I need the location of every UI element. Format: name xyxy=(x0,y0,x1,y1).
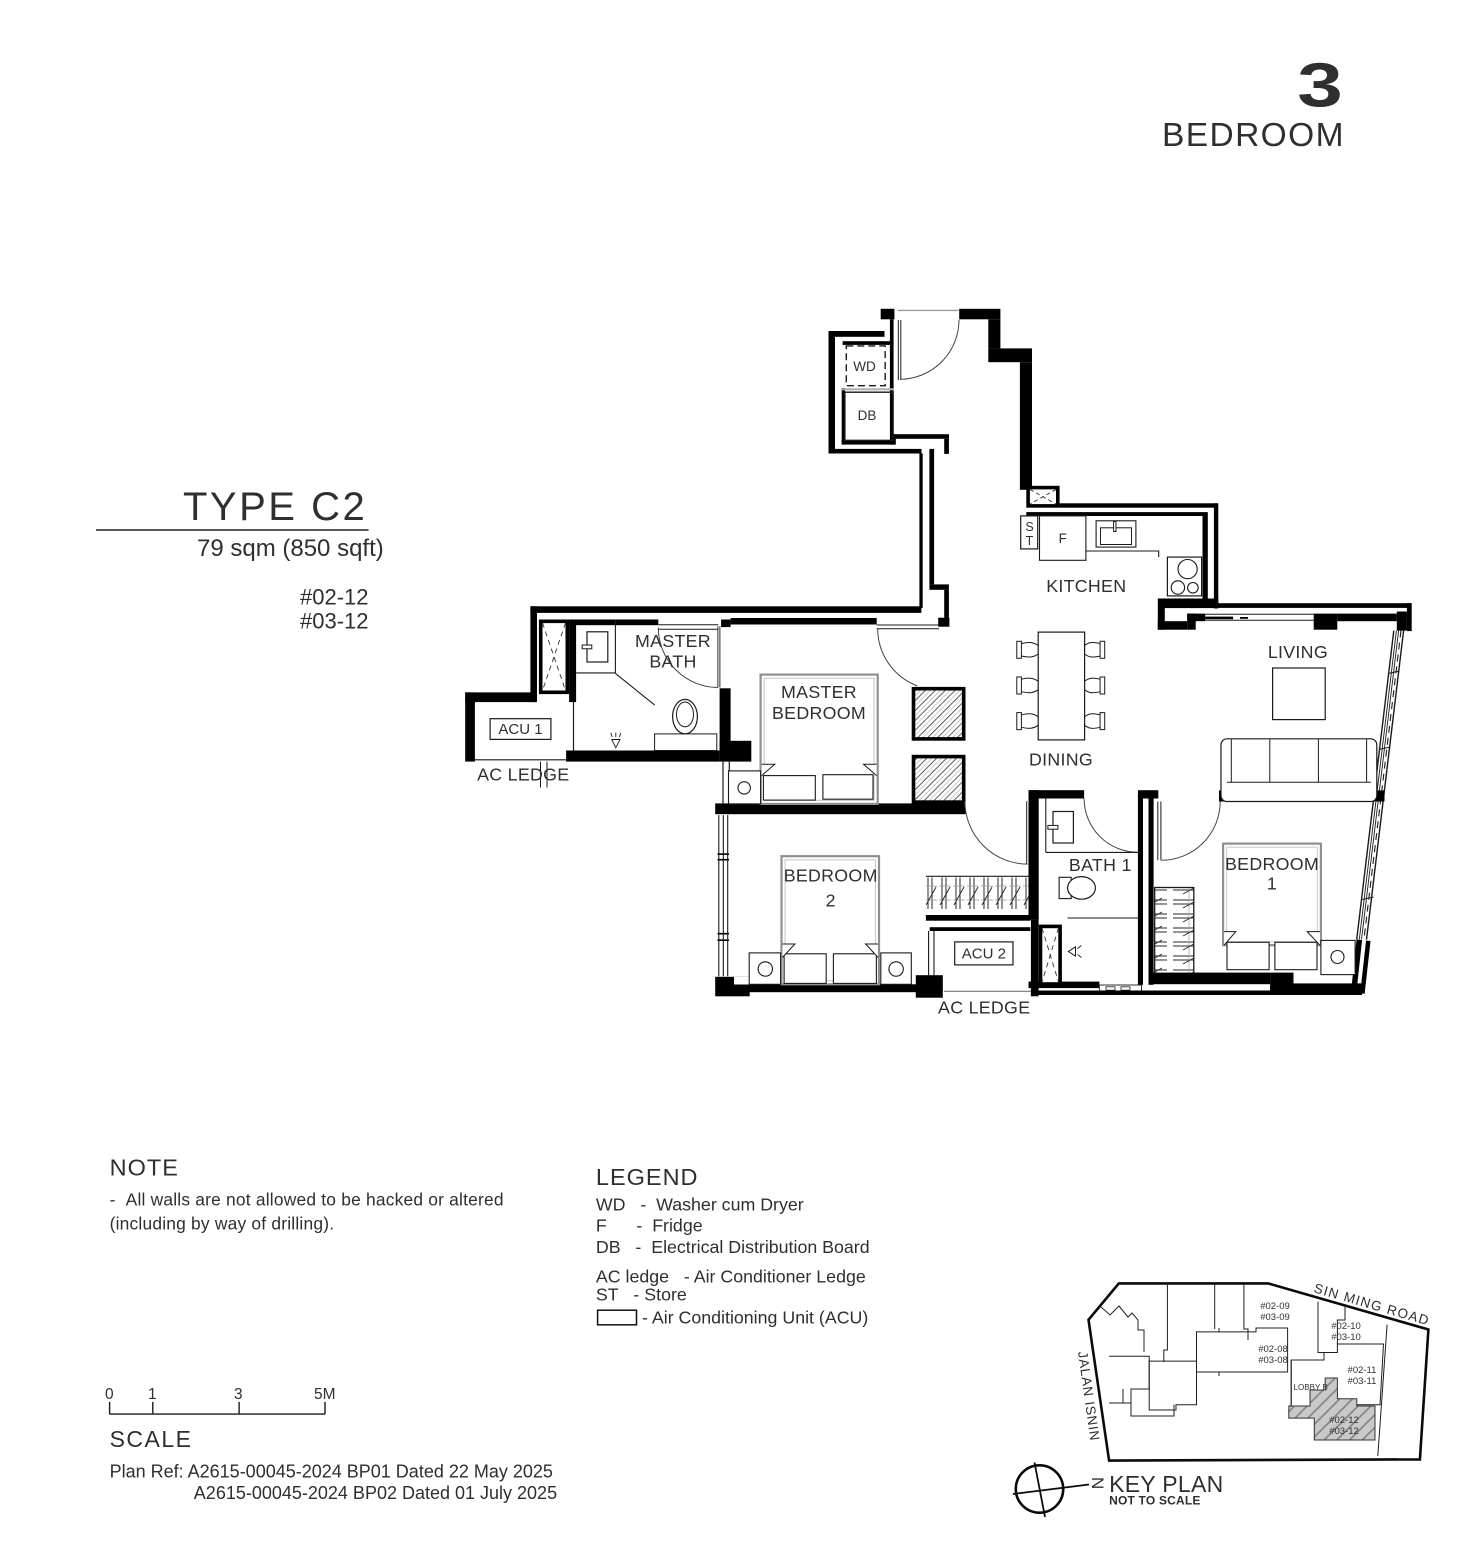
svg-text:DINING: DINING xyxy=(1029,749,1093,769)
svg-text:A2615-00045-2024 BP02 Dated 01: A2615-00045-2024 BP02 Dated 01 July 2025 xyxy=(194,1483,557,1503)
svg-text:79 sqm (850 sqft): 79 sqm (850 sqft) xyxy=(197,535,384,562)
svg-text:- Air Conditioning Unit (ACU): - Air Conditioning Unit (ACU) xyxy=(642,1308,868,1328)
svg-text:S: S xyxy=(1025,520,1033,534)
svg-text:WD: WD xyxy=(853,359,876,374)
svg-text:AC LEDGE: AC LEDGE xyxy=(938,998,1030,1018)
svg-text:KITCHEN: KITCHEN xyxy=(1046,576,1126,596)
svg-text:WD - Washer cum Dryer: WD - Washer cum Dryer xyxy=(596,1195,804,1215)
svg-text:1: 1 xyxy=(148,1386,157,1403)
svg-text:#03-12: #03-12 xyxy=(1329,1426,1359,1437)
svg-text:#02-08: #02-08 xyxy=(1258,1344,1288,1355)
svg-text:1: 1 xyxy=(1267,874,1277,894)
svg-text:#02-12: #02-12 xyxy=(300,585,369,610)
svg-text:#03-09: #03-09 xyxy=(1260,1312,1290,1323)
svg-text:AC LEDGE: AC LEDGE xyxy=(477,764,569,784)
svg-text:ST - Store: ST - Store xyxy=(596,1285,687,1305)
svg-text:AC ledge - Air Conditioner L: AC ledge - Air Conditioner Ledge xyxy=(596,1266,866,1286)
svg-text:(including by way of drilling): (including by way of drilling). xyxy=(110,1213,335,1233)
svg-text:BATH: BATH xyxy=(649,652,696,672)
svg-text:5M: 5M xyxy=(314,1386,336,1403)
svg-text:F: F xyxy=(1059,531,1067,546)
svg-text:3: 3 xyxy=(1297,51,1343,120)
svg-text:#03-08: #03-08 xyxy=(1258,1355,1288,1366)
svg-text:#02-09: #02-09 xyxy=(1260,1301,1290,1312)
svg-text:BEDROOM: BEDROOM xyxy=(1162,117,1345,154)
svg-text:N: N xyxy=(1088,1477,1107,1489)
svg-text:BATH 1: BATH 1 xyxy=(1069,855,1132,875)
svg-text:- All walls are not allowed t: - All walls are not allowed to be hacked… xyxy=(110,1190,504,1210)
svg-text:#03-11: #03-11 xyxy=(1348,1376,1377,1387)
svg-text:ACU 2: ACU 2 xyxy=(962,946,1006,963)
svg-text:BEDROOM: BEDROOM xyxy=(772,703,866,723)
svg-text:MASTER: MASTER xyxy=(635,631,711,651)
svg-text:#03-12: #03-12 xyxy=(300,609,369,634)
svg-text:SCALE: SCALE xyxy=(110,1426,193,1452)
svg-text:#03-10: #03-10 xyxy=(1331,1332,1361,1343)
svg-text:#02-11: #02-11 xyxy=(1348,1365,1377,1376)
svg-text:LIVING: LIVING xyxy=(1268,642,1328,662)
svg-text:MASTER: MASTER xyxy=(781,682,857,702)
svg-text:ACU 1: ACU 1 xyxy=(498,721,542,738)
svg-text:F - Fridge: F - Fridge xyxy=(596,1215,703,1235)
svg-text:LOBBY B: LOBBY B xyxy=(1294,1383,1328,1392)
svg-text:2: 2 xyxy=(826,890,836,910)
svg-text:DB - Electrical Distributio: DB - Electrical Distribution Board xyxy=(596,1237,870,1257)
svg-text:T: T xyxy=(1026,534,1034,548)
svg-text:NOTE: NOTE xyxy=(110,1154,179,1180)
svg-text:NOT TO SCALE: NOT TO SCALE xyxy=(1109,1494,1201,1508)
svg-text:3: 3 xyxy=(234,1386,243,1403)
svg-text:BEDROOM: BEDROOM xyxy=(1225,854,1319,874)
svg-text:0: 0 xyxy=(105,1386,114,1403)
svg-text:DB: DB xyxy=(858,408,877,423)
svg-text:Plan Ref: A2615-00045-2024 BP0: Plan Ref: A2615-00045-2024 BP01 Dated 22… xyxy=(110,1461,553,1481)
svg-text:#02-12: #02-12 xyxy=(1329,1415,1359,1426)
svg-text:TYPE C2: TYPE C2 xyxy=(183,485,367,529)
svg-text:#02-10: #02-10 xyxy=(1331,1321,1361,1332)
svg-text:LEGEND: LEGEND xyxy=(596,1164,699,1190)
svg-text:BEDROOM: BEDROOM xyxy=(784,865,878,885)
